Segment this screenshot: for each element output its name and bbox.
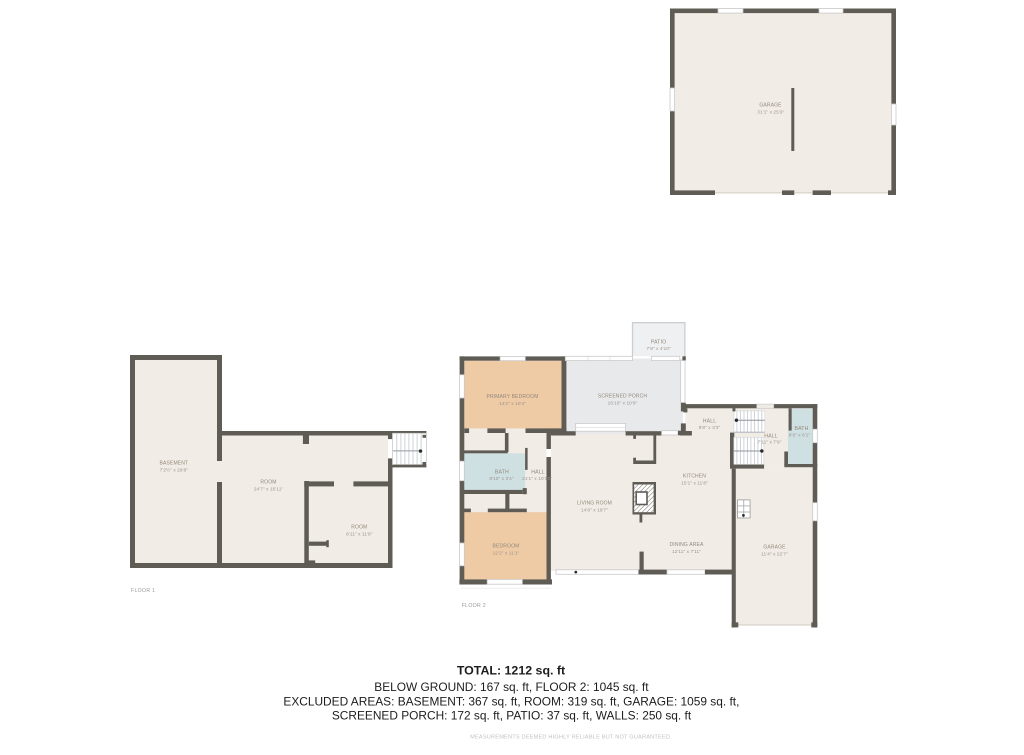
svg-text:HALL: HALL (703, 418, 717, 424)
svg-text:HALL: HALL (764, 433, 778, 439)
svg-text:FLOOR 1: FLOOR 1 (131, 588, 155, 594)
svg-text:EXCLUDED AREAS: BASEMENT: 367: EXCLUDED AREAS: BASEMENT: 367 sq. ft, RO… (283, 694, 739, 708)
svg-text:21'1" x 10'10": 21'1" x 10'10" (522, 476, 552, 481)
svg-text:15'1" x 11'8": 15'1" x 11'8" (681, 480, 708, 485)
svg-text:FLOOR 2: FLOOR 2 (462, 603, 486, 609)
svg-text:PRIMARY BEDROOM: PRIMARY BEDROOM (486, 394, 538, 400)
svg-text:8'11" x 11'8": 8'11" x 11'8" (346, 531, 373, 536)
svg-text:BELOW GROUND: 167 sq. ft, FLOO: BELOW GROUND: 167 sq. ft, FLOOR 2: 1045 … (374, 680, 649, 694)
svg-text:BATH: BATH (495, 469, 509, 475)
svg-text:8'8" x 3'3": 8'8" x 3'3" (699, 425, 721, 430)
svg-text:LIVING ROOM: LIVING ROOM (577, 500, 612, 506)
svg-text:BATH: BATH (794, 426, 808, 432)
svg-text:BASEMENT: BASEMENT (160, 460, 189, 466)
svg-text:TOTAL: 1212 sq. ft: TOTAL: 1212 sq. ft (457, 663, 565, 677)
svg-text:12'2" x 11'1": 12'2" x 11'1" (493, 550, 520, 555)
svg-text:ROOM: ROOM (351, 524, 367, 530)
svg-text:BEDROOM: BEDROOM (493, 543, 520, 549)
svg-text:8'10" x 3'4": 8'10" x 3'4" (489, 476, 514, 481)
svg-text:12'11" x 7'11": 12'11" x 7'11" (672, 549, 701, 554)
svg-text:7'2½" x 29'8": 7'2½" x 29'8" (160, 466, 189, 472)
svg-text:PATIO: PATIO (651, 339, 667, 345)
svg-text:KITCHEN: KITCHEN (683, 473, 706, 479)
svg-text:31'1" x 25'9": 31'1" x 25'9" (757, 110, 784, 115)
svg-text:MEASUREMENTS DEEMED HIGHLY REL: MEASUREMENTS DEEMED HIGHLY RELIABLE BUT … (470, 735, 672, 741)
svg-text:24'7" x 16'11": 24'7" x 16'11" (254, 486, 284, 491)
svg-text:HALL: HALL (531, 469, 545, 475)
svg-text:14'2" x 10'4": 14'2" x 10'4" (499, 401, 526, 406)
svg-text:16'10" x 10'9": 16'10" x 10'9" (608, 400, 638, 405)
svg-text:DINING AREA: DINING AREA (670, 542, 704, 548)
svg-text:ROOM: ROOM (260, 479, 276, 485)
svg-text:7'11" x 7'9": 7'11" x 7'9" (758, 440, 782, 445)
svg-text:7'8" x 4'10": 7'8" x 4'10" (647, 346, 672, 351)
svg-text:11'4" x 22'7": 11'4" x 22'7" (761, 551, 788, 556)
svg-text:SCREENED PORCH: SCREENED PORCH (598, 393, 648, 399)
svg-text:GARAGE: GARAGE (759, 103, 782, 109)
svg-text:14'8" x 19'7": 14'8" x 19'7" (581, 507, 608, 512)
svg-text:GARAGE: GARAGE (763, 544, 786, 550)
svg-text:SCREENED PORCH: 172 sq. ft, PA: SCREENED PORCH: 172 sq. ft, PATIO: 37 sq… (332, 709, 692, 723)
svg-text:9'9" x 6'1": 9'9" x 6'1" (789, 432, 811, 437)
